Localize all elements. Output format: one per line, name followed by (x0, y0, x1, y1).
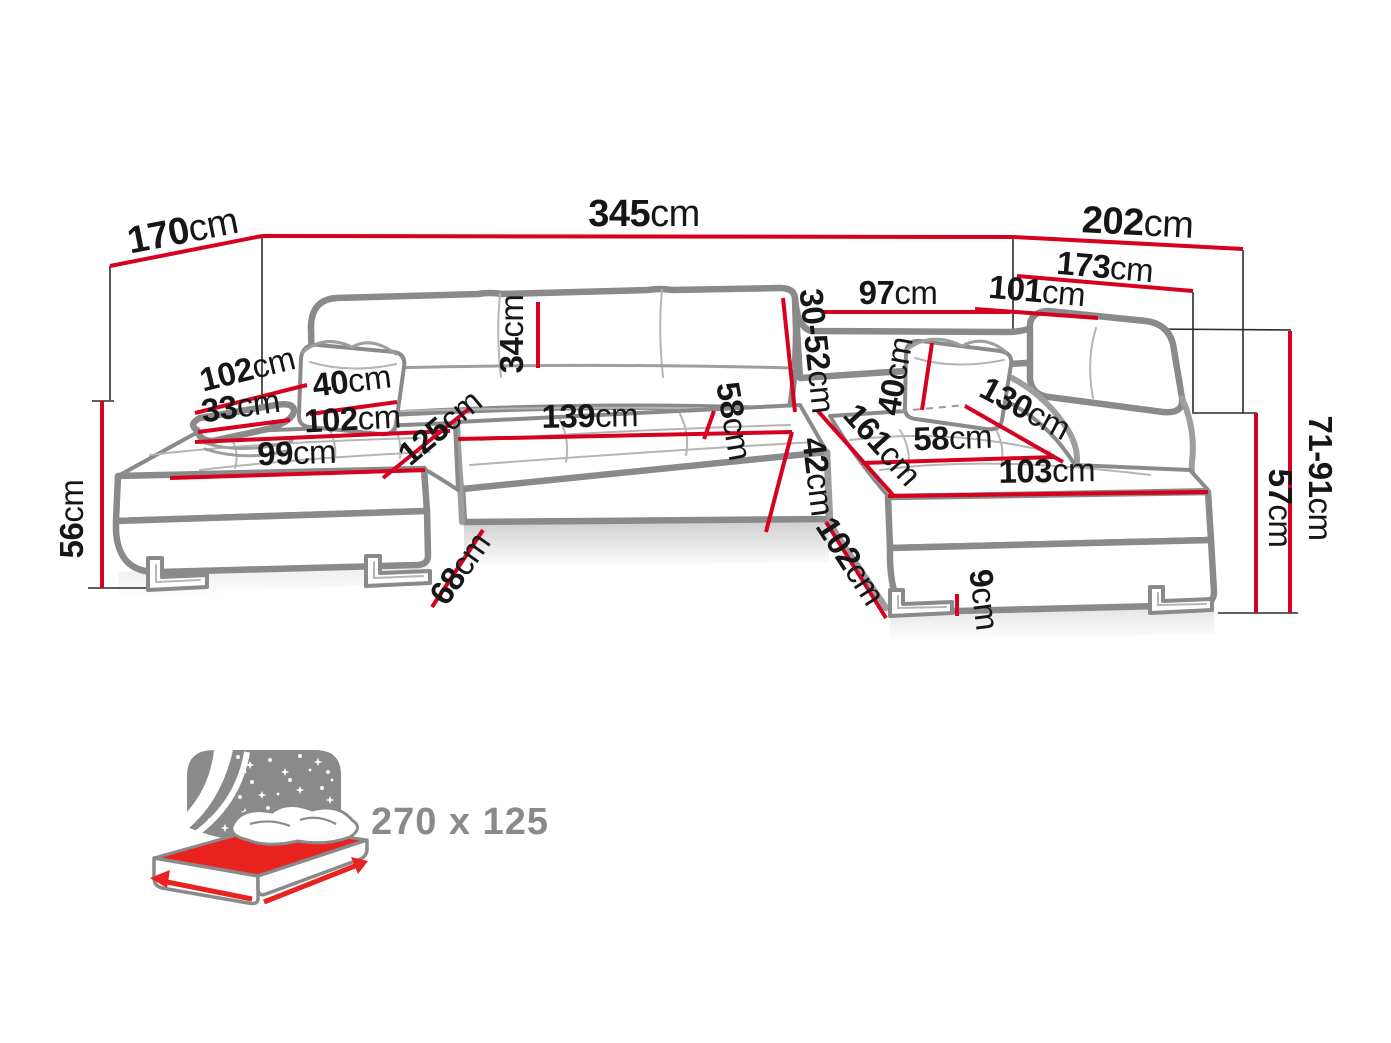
dim-label-101: 101cm (987, 268, 1086, 313)
dim-label-57: 57cm (1262, 469, 1299, 548)
dim-label-345: 345cm (588, 193, 700, 235)
bed-icon (150, 805, 368, 903)
dim-label-97: 97cm (859, 274, 938, 311)
dim-label-9: 9cm (962, 567, 1006, 632)
dim-label-202: 202cm (1081, 199, 1195, 247)
sleeping-size-label: 270 x 125 (371, 801, 549, 843)
sofa-dimension-diagram: 170cm 345cm 202cm 173cm 97cm 101cm 34cm … (0, 0, 1391, 1043)
dim-label-71-91: 71-91cm (1302, 416, 1339, 541)
dim-line-345 (262, 236, 1014, 237)
dim-label-56: 56cm (53, 480, 90, 559)
headrest-right (1030, 311, 1182, 412)
dim-label-30-52: 30-52cm (793, 287, 843, 415)
dim-label-139: 139cm (541, 396, 638, 435)
dim-label-58-right: 58cm (913, 418, 993, 458)
diagram-canvas: 170cm 345cm 202cm 173cm 97cm 101cm 34cm … (0, 0, 1391, 1043)
sleeping-function-icon: 270 x 125 (150, 750, 549, 904)
dim-label-34: 34cm (493, 295, 530, 374)
dim-label-99: 99cm (257, 433, 337, 473)
dim-label-103: 103cm (998, 451, 1095, 490)
